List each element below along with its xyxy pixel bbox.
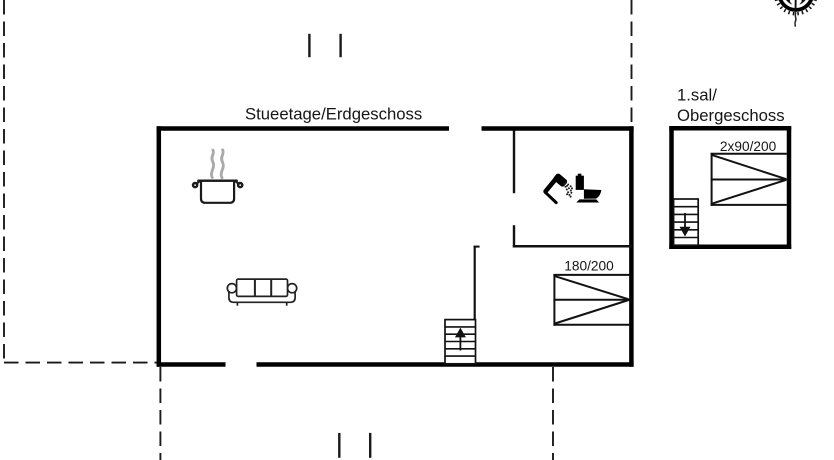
svg-text:180/200: 180/200: [564, 258, 614, 273]
svg-text:1.sal/: 1.sal/: [677, 86, 717, 105]
svg-text:Obergeschoss: Obergeschoss: [677, 106, 785, 125]
svg-text:Stueetage/Erdgeschoss: Stueetage/Erdgeschoss: [245, 104, 422, 123]
svg-text:2x90/200: 2x90/200: [720, 139, 777, 154]
